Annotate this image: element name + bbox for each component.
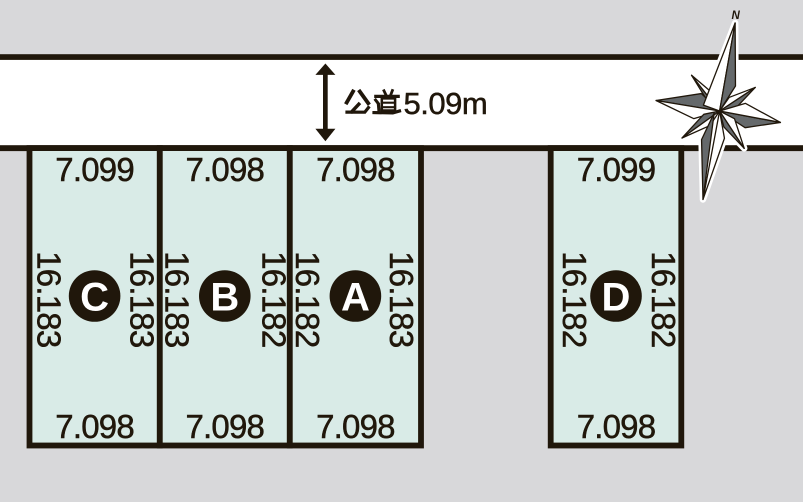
svg-text:C: C <box>80 275 109 319</box>
svg-text:5.09m: 5.09m <box>404 86 488 121</box>
svg-text:B: B <box>210 275 239 319</box>
svg-text:N: N <box>732 10 741 22</box>
svg-text:7.098: 7.098 <box>577 408 656 445</box>
svg-text:16.183: 16.183 <box>159 251 196 347</box>
svg-text:7.098: 7.098 <box>316 151 395 188</box>
svg-text:16.182: 16.182 <box>256 251 293 347</box>
svg-text:7.098: 7.098 <box>186 408 265 445</box>
svg-text:A: A <box>341 275 370 319</box>
svg-text:16.183: 16.183 <box>31 251 68 347</box>
svg-text:7.098: 7.098 <box>186 151 265 188</box>
svg-text:7.098: 7.098 <box>316 408 395 445</box>
svg-text:D: D <box>602 275 631 319</box>
svg-text:16.182: 16.182 <box>289 251 326 347</box>
svg-text:16.182: 16.182 <box>645 251 682 347</box>
svg-text:16.182: 16.182 <box>556 251 593 347</box>
svg-text:16.183: 16.183 <box>124 251 161 347</box>
svg-text:7.098: 7.098 <box>55 408 134 445</box>
svg-text:16.183: 16.183 <box>383 251 420 347</box>
svg-text:7.099: 7.099 <box>55 151 134 188</box>
svg-text:7.099: 7.099 <box>577 151 656 188</box>
